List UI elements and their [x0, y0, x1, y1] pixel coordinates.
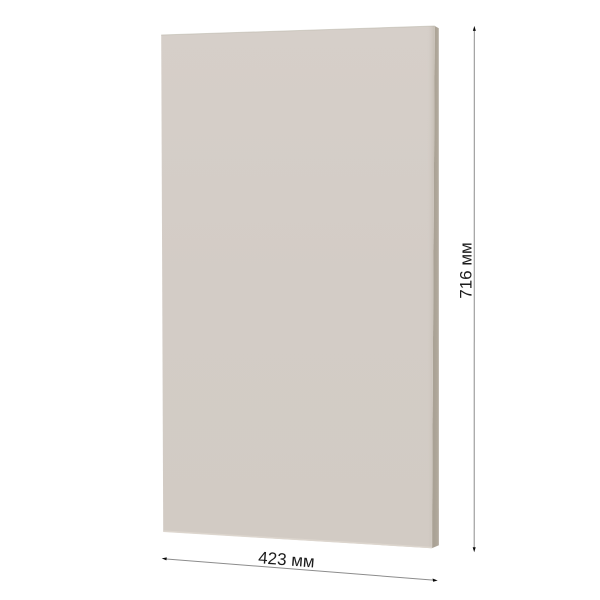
- svg-text:716 мм: 716 мм: [456, 242, 475, 298]
